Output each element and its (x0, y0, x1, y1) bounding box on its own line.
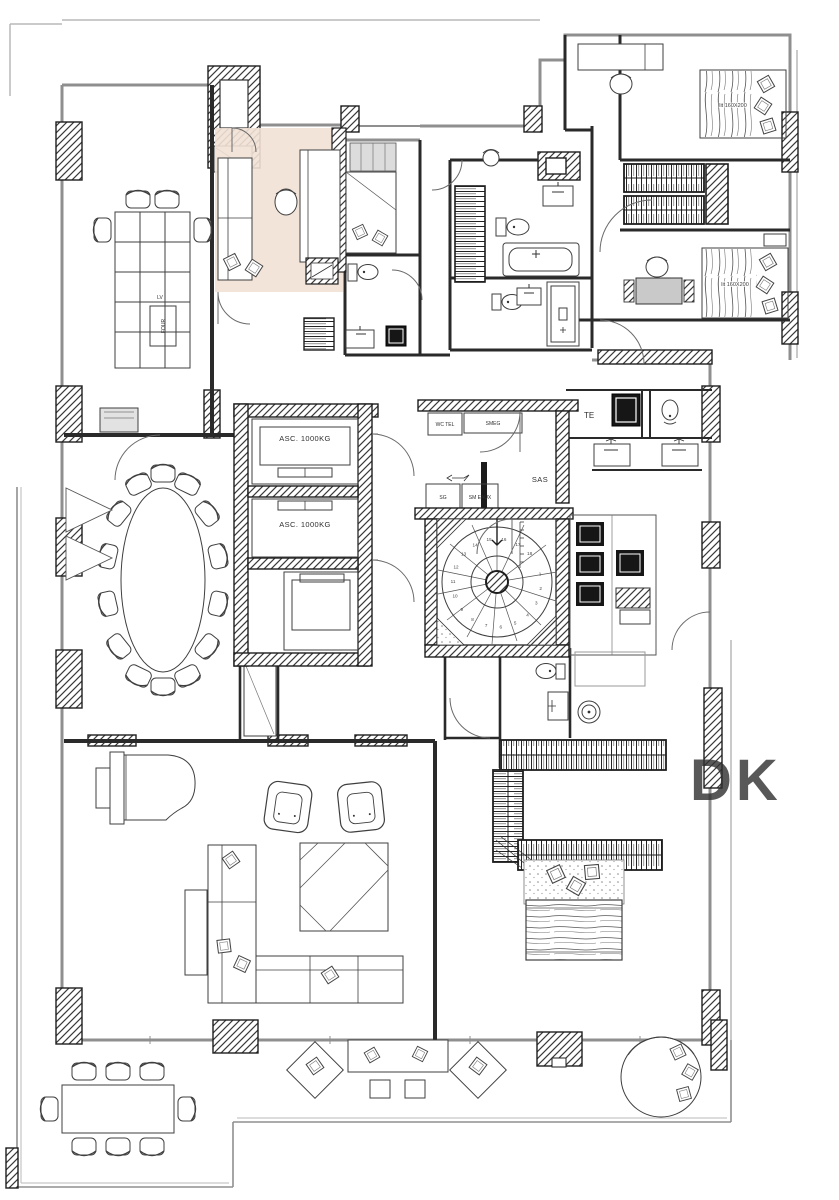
stool (483, 150, 499, 167)
elevator-2-label: ASC. 1000KG (279, 520, 331, 529)
bed-small (346, 172, 396, 253)
dining-chair (155, 191, 179, 209)
sas-label: SAS (532, 475, 548, 484)
meeting-chair (207, 590, 229, 617)
lounge-chair (450, 1042, 507, 1099)
sg-label: SG (439, 495, 446, 501)
terrace-chair (72, 1063, 96, 1081)
floor-plan-page: LV FOUR (0, 0, 839, 1200)
watermark: DK (690, 748, 782, 813)
sink (662, 439, 698, 466)
elevator-1: ASC. 1000KG (252, 419, 358, 484)
sink (543, 182, 573, 206)
stair-step-number: 12 (453, 564, 459, 569)
elevator-core: ASC. 1000KG ASC. 1000KG (234, 404, 378, 666)
stair-step-number: 2 (539, 586, 542, 591)
stair-step-number: 4 (526, 612, 529, 617)
dining-chair (126, 191, 150, 209)
oval-table (121, 488, 205, 672)
smeg-box: SMEG (464, 413, 522, 433)
floor-plan-drawing: LV FOUR (0, 0, 839, 1200)
round-daybed (621, 1037, 701, 1117)
terrace-chair (106, 1138, 130, 1156)
kitchen-dining-room: LV FOUR (94, 191, 212, 433)
terrace-chair (106, 1063, 130, 1081)
terrace-chair (72, 1138, 96, 1156)
wall-stub (481, 462, 487, 514)
master-suite (493, 740, 666, 960)
sink (594, 439, 630, 466)
stair-step-number: 9 (461, 607, 464, 612)
oven-label: FOUR (161, 319, 167, 334)
meeting-chair (151, 465, 175, 483)
meeting-chair (104, 632, 133, 662)
stair-step-number: 18 (527, 551, 533, 556)
toilet (348, 264, 378, 281)
kitchen-island: LV FOUR (115, 212, 190, 368)
dining-chair (194, 218, 212, 242)
toilet (536, 664, 565, 680)
spiral-staircase: 123456789101112131415161718 (415, 508, 573, 657)
terrace (41, 1037, 702, 1156)
stair-step-number: 13 (461, 552, 467, 557)
smeg-label: SMEG (486, 421, 501, 427)
terrace-chair (41, 1097, 59, 1121)
stair-step-number: 11 (451, 579, 456, 584)
terrace-chairs (41, 1063, 196, 1156)
master-bed (524, 858, 624, 960)
terrace-chair (140, 1063, 164, 1081)
pivot-door (66, 536, 112, 580)
pivot-door (66, 488, 112, 532)
kitchenette-counter (570, 515, 656, 655)
bed-1: lit 160X200 (700, 70, 786, 138)
outdoor-bench (348, 1040, 448, 1072)
stair-step-number: 8 (471, 617, 474, 622)
stair-step-number: 7 (485, 623, 488, 628)
sg-box: SG (426, 484, 460, 510)
elevator-3-shaft (284, 572, 358, 650)
bedroom-wing: lit 160X200 lit 160X200 (578, 44, 788, 318)
oval-chairs (96, 465, 229, 696)
meeting-chair (193, 632, 222, 662)
sas-area: WC TEL SMEG SG SM EAUX SAS (418, 400, 578, 510)
meeting-chair (151, 678, 175, 696)
media-unit (306, 258, 338, 284)
te-label: TE (584, 411, 594, 420)
swing-arrows (447, 475, 469, 481)
stair-step-number: 10 (452, 594, 458, 599)
terrace-dining-table (41, 1063, 196, 1156)
stair-step-number: 6 (500, 624, 503, 629)
side-table (185, 890, 207, 975)
sink (548, 692, 568, 720)
living-room (96, 752, 403, 1003)
sectional-sofa (208, 845, 403, 1003)
desk-2 (624, 257, 694, 304)
lounge-chair (287, 1042, 344, 1099)
side-table (370, 1080, 390, 1098)
shower (547, 282, 579, 346)
meeting-chair (193, 499, 222, 529)
small-bedroom (346, 143, 396, 253)
armchair (337, 781, 386, 833)
dressing-closets (493, 740, 666, 870)
nightstand (764, 234, 786, 246)
bathtub (503, 243, 579, 276)
terrace-chair (140, 1138, 164, 1156)
grand-piano (96, 752, 195, 824)
toilet (662, 400, 678, 424)
desk (578, 44, 663, 94)
side-table (405, 1080, 425, 1098)
meeting-room (66, 465, 230, 696)
sink (517, 284, 541, 305)
stair-step-number: 3 (535, 600, 538, 605)
linen-cabinet (304, 318, 334, 350)
stair-step-number: 16 (501, 537, 507, 542)
stair-step-number: 17 (515, 542, 521, 547)
meeting-chair (96, 590, 118, 617)
elevator-2: ASC. 1000KG (252, 499, 358, 557)
wc-tel-box: WC TEL (428, 413, 462, 435)
counter (575, 652, 645, 686)
meeting-chair (207, 543, 229, 570)
rug (300, 843, 388, 931)
toilet (496, 218, 529, 236)
highlight-room[interactable] (215, 128, 346, 292)
armchair (263, 780, 313, 834)
washing-machine (578, 701, 600, 723)
bed-2: lit 160X200 (702, 234, 788, 318)
double-wardrobe (624, 164, 728, 224)
elevator-1-label: ASC. 1000KG (279, 434, 331, 443)
bed-2-label: lit 160X200 (721, 282, 749, 288)
appliance (100, 408, 138, 432)
utility-rooms: TE (570, 394, 698, 655)
dishwasher-label: LV (157, 295, 163, 301)
stair-center-column (486, 571, 508, 593)
wc-tel-label: WC TEL (436, 422, 455, 428)
stair-step-number: 15 (487, 537, 493, 542)
sm-eaux-label: SM EAUX (469, 495, 492, 501)
terrace-chair (178, 1097, 196, 1121)
dining-chair (94, 218, 112, 242)
wardrobe (455, 186, 485, 282)
stair-step-number: 1 (539, 571, 542, 576)
bed-1-label: lit 160X200 (719, 103, 747, 109)
guest-bathroom (536, 652, 645, 723)
sink (346, 330, 374, 348)
meeting-chair (104, 499, 133, 529)
sm-eaux-box: SM EAUX (462, 484, 498, 510)
stair-step-number: 5 (514, 621, 517, 626)
